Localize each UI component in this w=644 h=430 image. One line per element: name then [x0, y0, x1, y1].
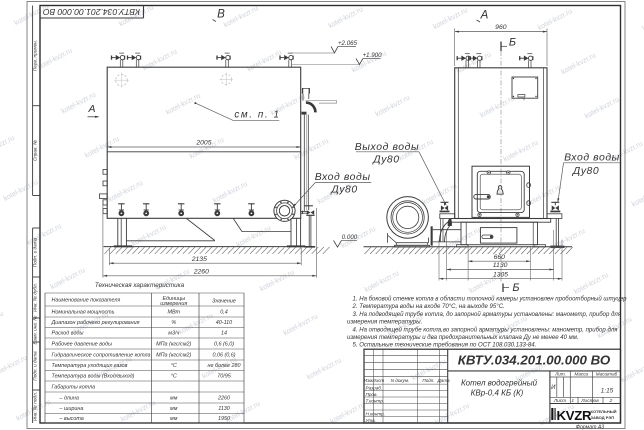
svg-text:Лит.: Лит. [554, 372, 566, 377]
svg-text:мм: мм [170, 406, 178, 412]
svg-text:измерения: измерения [160, 301, 187, 307]
svg-text:Масштаб: Масштаб [596, 372, 618, 377]
svg-text:1950: 1950 [218, 416, 230, 422]
svg-text:960: 960 [495, 24, 507, 31]
svg-text:А: А [87, 103, 95, 115]
svg-text:Формат А3: Формат А3 [576, 425, 604, 430]
svg-text:КВр-0,4 КБ (К): КВр-0,4 КБ (К) [471, 388, 524, 397]
svg-text:N докум.: N докум. [391, 378, 410, 383]
svg-text:– высота: – высота [58, 416, 83, 422]
svg-text:1305: 1305 [493, 271, 508, 278]
svg-text:Б: Б [509, 37, 516, 49]
svg-text:0,4: 0,4 [220, 309, 228, 315]
svg-text:660: 660 [494, 254, 506, 261]
svg-text:А: А [480, 10, 489, 22]
svg-text:2260: 2260 [217, 395, 230, 401]
svg-text:МПа (кгс/см2): МПа (кгс/см2) [156, 341, 191, 347]
svg-text:Ду80: Ду80 [372, 155, 399, 166]
svg-text:2005: 2005 [195, 140, 211, 147]
svg-text:не более 280: не более 280 [208, 363, 241, 369]
svg-text:– ширина: – ширина [58, 406, 83, 412]
svg-text:Наименование показателя: Наименование показателя [52, 297, 121, 303]
svg-text:Расход воды: Расход воды [52, 331, 84, 337]
svg-text:+1.900: +1.900 [362, 52, 382, 59]
svg-text:1. На боковой стенке котла в: 1. На боковой стенке котла в области топ… [353, 295, 628, 302]
svg-text:14: 14 [221, 331, 227, 337]
svg-text:KVZR: KVZR [557, 408, 592, 423]
svg-text:Инв. № подл.: Инв. № подл. [33, 392, 38, 421]
svg-text:Разраб.: Разраб. [366, 385, 383, 390]
svg-text:измерения температуры.: измерения температуры. [347, 320, 422, 326]
svg-text:м3/ч: м3/ч [168, 331, 179, 337]
svg-text:КВТУ.034.201.00.000 ВО: КВТУ.034.201.00.000 ВО [458, 353, 611, 368]
svg-text:И: И [551, 385, 556, 391]
svg-text:мм: мм [170, 395, 178, 401]
svg-text:Перв. примен.: Перв. примен. [33, 40, 38, 71]
svg-text:4. На отводящей трубе котла,в: 4. На отводящей трубе котла,во запорной … [353, 326, 619, 333]
svg-text:Н.контр.: Н.контр. [366, 411, 385, 416]
svg-text:Ду80: Ду80 [330, 185, 357, 196]
svg-text:см. п. 1: см. п. 1 [234, 109, 280, 120]
svg-text:КВТУ.034.201.00.000 ВО: КВТУ.034.201.00.000 ВО [43, 7, 140, 17]
svg-text:Котел водогрейный: Котел водогрейный [461, 378, 538, 387]
svg-text:Подп. и дата: Подп. и дата [33, 237, 38, 267]
svg-text:Лист: Лист [553, 398, 566, 404]
svg-text:Лист: Лист [371, 378, 384, 383]
svg-text:Гидравлическое сопротивление к: Гидравлическое сопротивление котла [52, 352, 151, 358]
svg-text:Подп. и дата: Подп. и дата [33, 351, 38, 381]
svg-text:Вход воды: Вход воды [315, 172, 371, 183]
svg-text:70/95: 70/95 [217, 374, 231, 380]
svg-text:мм: мм [170, 416, 178, 422]
svg-text:Масса: Масса [575, 372, 589, 377]
svg-text:– длина: – длина [58, 395, 78, 401]
svg-text:Габариты котла: Габариты котла [52, 384, 96, 390]
svg-text:Ду80: Ду80 [572, 166, 599, 177]
svg-text:Рабочее давление воды: Рабочее давление воды [52, 341, 112, 347]
svg-text:Листов: Листов [580, 398, 599, 404]
svg-text:измерения температуры и два пр: измерения температуры и два предохраните… [347, 335, 579, 341]
svg-text:1130: 1130 [218, 406, 230, 412]
svg-text:1130: 1130 [493, 262, 508, 269]
svg-text:МПа (кгс/см2): МПа (кгс/см2) [156, 352, 191, 358]
svg-text:Значение: Значение [212, 299, 236, 305]
svg-text:Дата: Дата [436, 378, 450, 383]
svg-text:%: % [171, 320, 176, 326]
svg-text:Инв. № дубл.: Инв. № дубл. [33, 283, 38, 312]
svg-text:40-110: 40-110 [216, 320, 232, 326]
svg-text:Подп.: Подп. [422, 378, 434, 383]
svg-text:Температура уходящих газов: Температура уходящих газов [52, 363, 128, 369]
svg-text:°С: °С [171, 374, 177, 380]
svg-text:МВт: МВт [167, 309, 180, 315]
svg-text:ЗАВОД РЭП: ЗАВОД РЭП [591, 415, 615, 420]
svg-text:2135: 2135 [191, 256, 207, 263]
svg-text:Пров.: Пров. [366, 392, 378, 397]
svg-text:0,06 (0,6): 0,06 (0,6) [212, 352, 235, 358]
svg-text:Диапазон рабочего регулировани: Диапазон рабочего регулирования [51, 320, 140, 326]
svg-text:Техническая характеристика: Техническая характеристика [95, 282, 185, 289]
svg-text:Б: Б [512, 282, 519, 294]
svg-text:Температура воды (Вход/выход): Температура воды (Вход/выход) [52, 374, 135, 380]
svg-text:2260: 2260 [193, 268, 209, 275]
svg-text:Номинальная мощность: Номинальная мощность [52, 309, 115, 315]
svg-text:0,6 (6,0): 0,6 (6,0) [214, 341, 234, 347]
svg-text:+2.065: +2.065 [338, 40, 358, 47]
svg-text:Справ. №: Справ. № [33, 140, 38, 161]
svg-text:°С: °С [171, 363, 177, 369]
svg-text:2. Температура воды на входе: 2. Температура воды на входе 70°С, на вы… [352, 304, 505, 310]
svg-text:Взам. инв. №: Взам. инв. № [33, 316, 38, 345]
svg-text:1:15: 1:15 [601, 388, 614, 395]
svg-text:Вход воды: Вход воды [564, 152, 620, 163]
svg-text:5. Остальные технические треб: 5. Остальные технические требования по О… [353, 342, 537, 348]
svg-text:КОТЕЛЬНЫЙ: КОТЕЛЬНЫЙ [591, 409, 617, 414]
svg-text:2: 2 [609, 398, 613, 404]
svg-text:0.000: 0.000 [342, 234, 358, 241]
svg-text:В: В [217, 9, 225, 21]
svg-text:Утв.: Утв. [366, 418, 376, 423]
svg-text:1: 1 [571, 398, 574, 404]
svg-text:Т.контр.: Т.контр. [366, 398, 385, 403]
svg-text:3. На подводящей трубе котла,: 3. На подводящей трубе котла, до запорно… [353, 311, 622, 318]
svg-text:Выход воды: Выход воды [355, 142, 419, 153]
